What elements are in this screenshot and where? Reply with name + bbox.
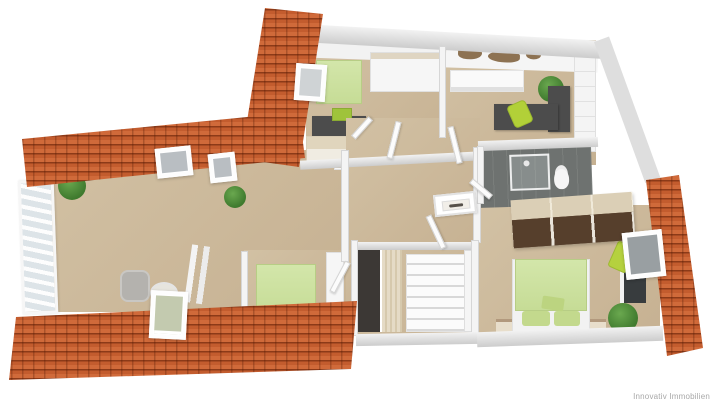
skylight-pane [213, 157, 232, 178]
shower [509, 154, 550, 191]
wall-room-divider-mid [241, 251, 248, 311]
outer-wall-right [594, 37, 660, 183]
wardrobe-wood-panel [380, 248, 402, 332]
skylight-pane [160, 151, 188, 174]
wall-stairs-right [471, 240, 479, 338]
armchair [120, 270, 150, 302]
picture-art [442, 198, 471, 211]
skylight-window-open [149, 290, 188, 340]
framed-picture [433, 191, 477, 217]
floorplan-render: Innovativ Immobilien [0, 0, 720, 405]
skylight-window [294, 63, 328, 102]
toilet [554, 169, 570, 190]
skylight-window-open [622, 229, 667, 280]
picture-car-sketch [449, 203, 463, 207]
built-in-wardrobe [510, 192, 635, 248]
wall-room-divider-top [439, 46, 446, 138]
skylight-pane [299, 68, 322, 96]
wall-living-hall [341, 150, 349, 262]
hallway-floor [346, 118, 480, 255]
plant-icon [224, 186, 246, 208]
wardrobe [370, 52, 444, 92]
window-wall [18, 179, 59, 314]
skylight-window [155, 145, 194, 179]
staircase-area [356, 242, 478, 337]
easel [184, 244, 220, 305]
skylight-pane [154, 295, 183, 334]
outer-wall-bottom-center [356, 332, 478, 346]
stairs [406, 254, 466, 332]
pillow [522, 311, 550, 326]
sideboard [450, 70, 524, 92]
pillow [554, 311, 580, 326]
skylight-window [208, 152, 238, 184]
watermark-text: Innovativ Immobilien [633, 392, 710, 401]
wardrobe-dark [358, 246, 380, 332]
skylight-pane [627, 235, 661, 275]
wall-top [356, 242, 478, 250]
